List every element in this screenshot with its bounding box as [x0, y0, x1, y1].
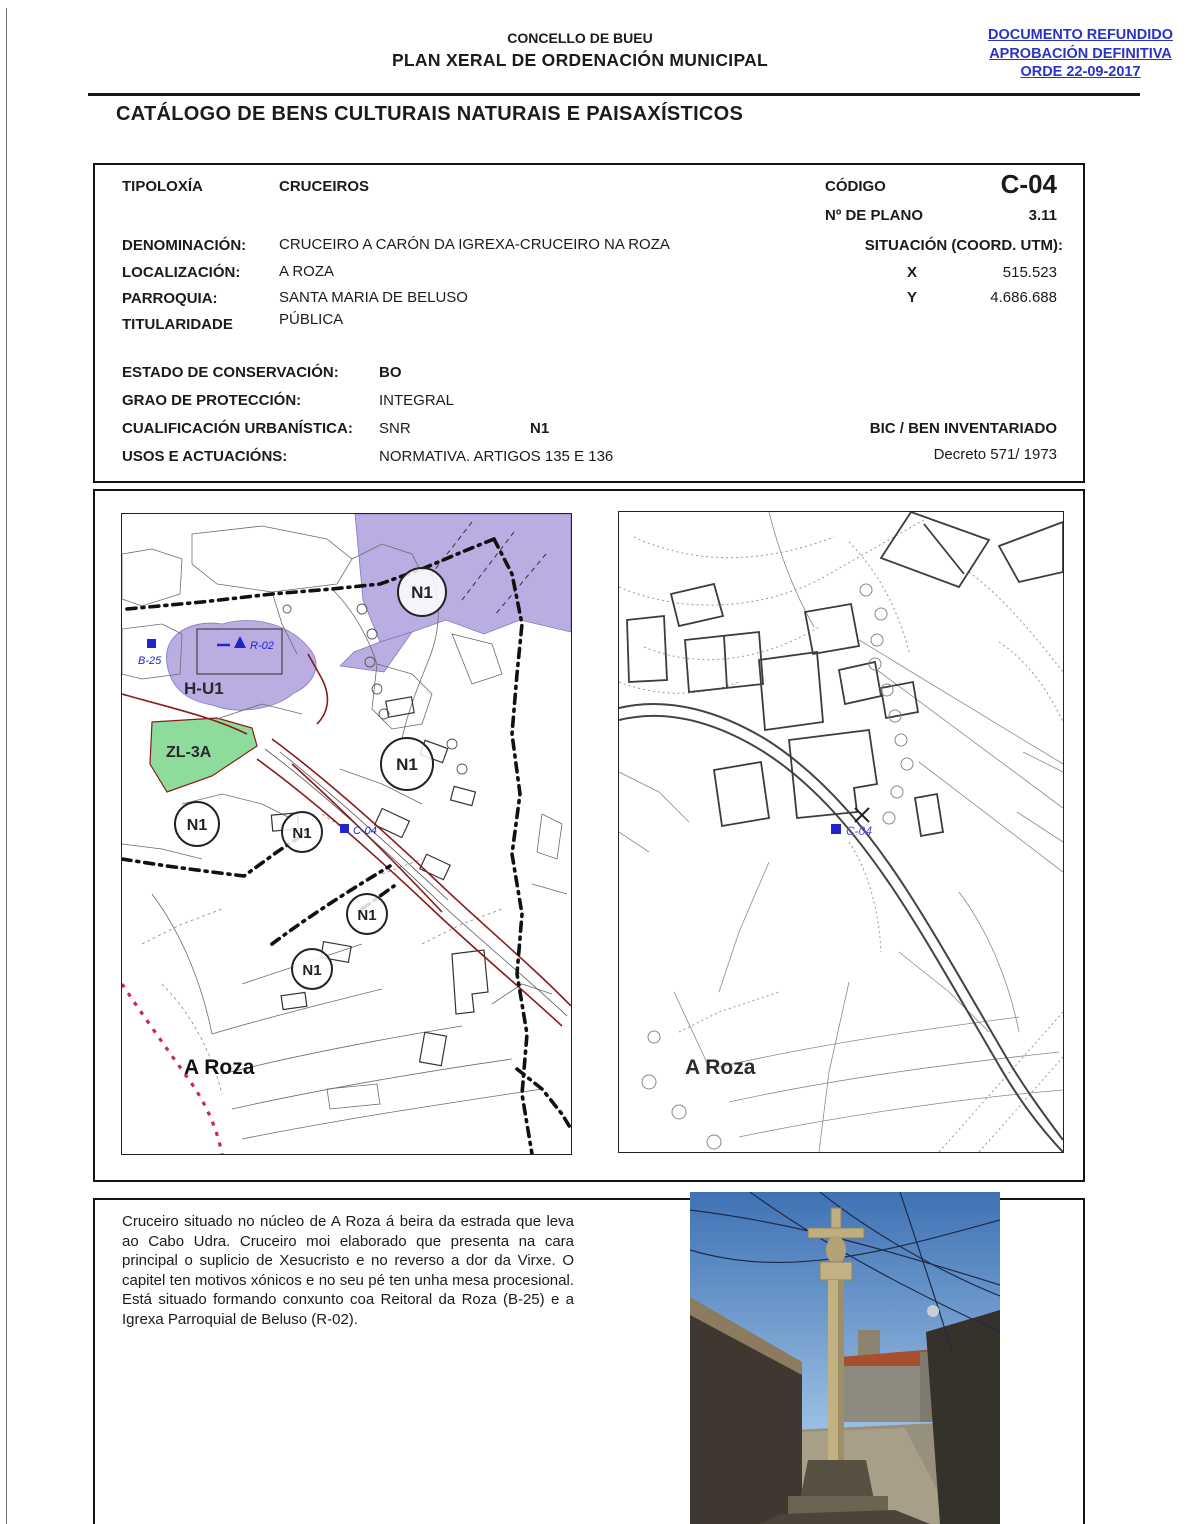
approval-stamp: DOCUMENTO REFUNDIDO APROBACIÓN DEFINITIV… — [973, 26, 1188, 82]
record-box: TIPOLOXÍA CRUCEIROS CÓDIGO C-04 Nº DE PL… — [93, 163, 1085, 483]
coord-y-label: Y — [907, 289, 917, 306]
coord-x-label: X — [907, 264, 917, 281]
map-zoning: N1 N1 N1 N1 N1 N1 H-U1 ZL-3A B-25 R-02 — [121, 513, 572, 1155]
localizacion-value: A ROZA — [279, 263, 334, 280]
n1-label: N1 — [411, 583, 433, 602]
header-plan-title: PLAN XERAL DE ORDENACIÓN MUNICIPAL — [230, 50, 930, 71]
denominacion-label: DENOMINACIÓN: — [122, 237, 246, 254]
decreto-value: Decreto 571/ 1973 — [934, 446, 1057, 463]
marker-b25-icon — [147, 639, 156, 648]
christ-figure — [826, 1236, 846, 1264]
place-label-right: A Roza — [685, 1056, 756, 1079]
map-cadastral: C-04 A Roza — [618, 511, 1064, 1153]
cualificacion-value2: N1 — [530, 420, 549, 437]
zone-residential-top — [355, 514, 571, 642]
estado-label: ESTADO DE CONSERVACIÓN: — [122, 364, 339, 381]
road — [619, 704, 1063, 1152]
stamp-line-2: APROBACIÓN DEFINITIVA — [973, 45, 1188, 64]
marker-c04-label: C-04 — [846, 824, 872, 838]
zone-residential-neck — [340, 632, 412, 672]
cualificacion-value: SNR — [379, 420, 411, 437]
capital — [820, 1262, 852, 1280]
zone-hu1-label: H-U1 — [184, 679, 224, 698]
n1-label: N1 — [302, 962, 321, 979]
coord-y-value: 4.686.688 — [990, 289, 1057, 306]
grao-label: GRAO DE PROTECCIÓN: — [122, 392, 301, 409]
parroquia-value: SANTA MARIA DE BELUSO — [279, 289, 468, 306]
pedestal — [800, 1460, 874, 1500]
localizacion-label: LOCALIZACIÓN: — [122, 264, 240, 281]
marker-c04-label: C-04 — [353, 825, 377, 837]
tipoloxia-label: TIPOLOXÍA — [122, 178, 203, 195]
plano-value: 3.11 — [1029, 207, 1057, 224]
cross-mark-icon — [855, 808, 869, 822]
n1-label: N1 — [292, 825, 311, 842]
n1-label: N1 — [396, 755, 418, 774]
zone-zl3a-label: ZL-3A — [166, 744, 212, 761]
stamp-line-3: ORDE 22-09-2017 — [973, 63, 1188, 82]
cruceiro-photo-drawing — [690, 1192, 1000, 1524]
grao-value: INTEGRAL — [379, 392, 454, 409]
bic-label: BIC / BEN INVENTARIADO — [870, 420, 1057, 437]
usos-label: USOS E ACTUACIÓNS: — [122, 448, 287, 465]
place-label-left: A Roza — [184, 1056, 255, 1079]
titularidade-value: PÚBLICA — [279, 311, 343, 328]
stamp-line-1: DOCUMENTO REFUNDIDO — [973, 26, 1188, 45]
description-text: Cruceiro situado no núcleo de A Roza á b… — [122, 1212, 574, 1329]
titularidade-label: TITULARIDADE — [122, 316, 233, 333]
column-shade — [838, 1280, 844, 1462]
tree-symbols — [642, 584, 913, 1149]
marker-r02-label: R-02 — [250, 640, 274, 652]
tipoloxia-value: CRUCEIROS — [279, 178, 369, 195]
marker-b25-label: B-25 — [138, 655, 162, 667]
header-org: CONCELLO DE BUEU — [230, 30, 930, 46]
street-lamp — [927, 1305, 939, 1317]
n1-label: N1 — [357, 907, 376, 924]
n1-label: N1 — [187, 817, 208, 834]
denominacion-value: CRUCEIRO A CARÓN DA IGREXA-CRUCEIRO NA R… — [279, 236, 670, 253]
parroquia-label: PARROQUIA: — [122, 290, 218, 307]
catalog-sheet: CONCELLO DE BUEU PLAN XERAL DE ORDENACIÓ… — [0, 0, 1200, 1524]
plano-label: Nº DE PLANO — [825, 207, 923, 224]
header-rule — [88, 93, 1140, 96]
header: CONCELLO DE BUEU PLAN XERAL DE ORDENACIÓ… — [230, 30, 930, 71]
cadastral-map-drawing: C-04 A Roza — [619, 512, 1063, 1152]
cruceiro-photo — [690, 1192, 1000, 1524]
marker-c04-icon — [831, 824, 841, 834]
tree-symbols — [283, 604, 467, 774]
usos-value: NORMATIVA. ARTIGOS 135 E 136 — [379, 448, 613, 465]
estado-value: BO — [379, 364, 402, 381]
codigo-value: C-04 — [1001, 169, 1057, 200]
page-title: CATÁLOGO DE BENS CULTURAIS NATURAIS E PA… — [116, 103, 1016, 126]
marker-c04-icon — [340, 824, 349, 833]
cualificacion-label: CUALIFICACIÓN URBANÍSTICA: — [122, 420, 353, 437]
codigo-label: CÓDIGO — [825, 178, 886, 195]
maps-box: N1 N1 N1 N1 N1 N1 H-U1 ZL-3A B-25 R-02 — [93, 489, 1085, 1182]
coord-x-value: 515.523 — [1003, 264, 1057, 281]
buildings — [627, 512, 1063, 836]
situacion-label: SITUACIÓN (COORD. UTM): — [865, 237, 1063, 254]
zoning-map-drawing: N1 N1 N1 N1 N1 N1 H-U1 ZL-3A B-25 R-02 — [122, 514, 571, 1154]
page-left-border — [6, 8, 7, 1524]
